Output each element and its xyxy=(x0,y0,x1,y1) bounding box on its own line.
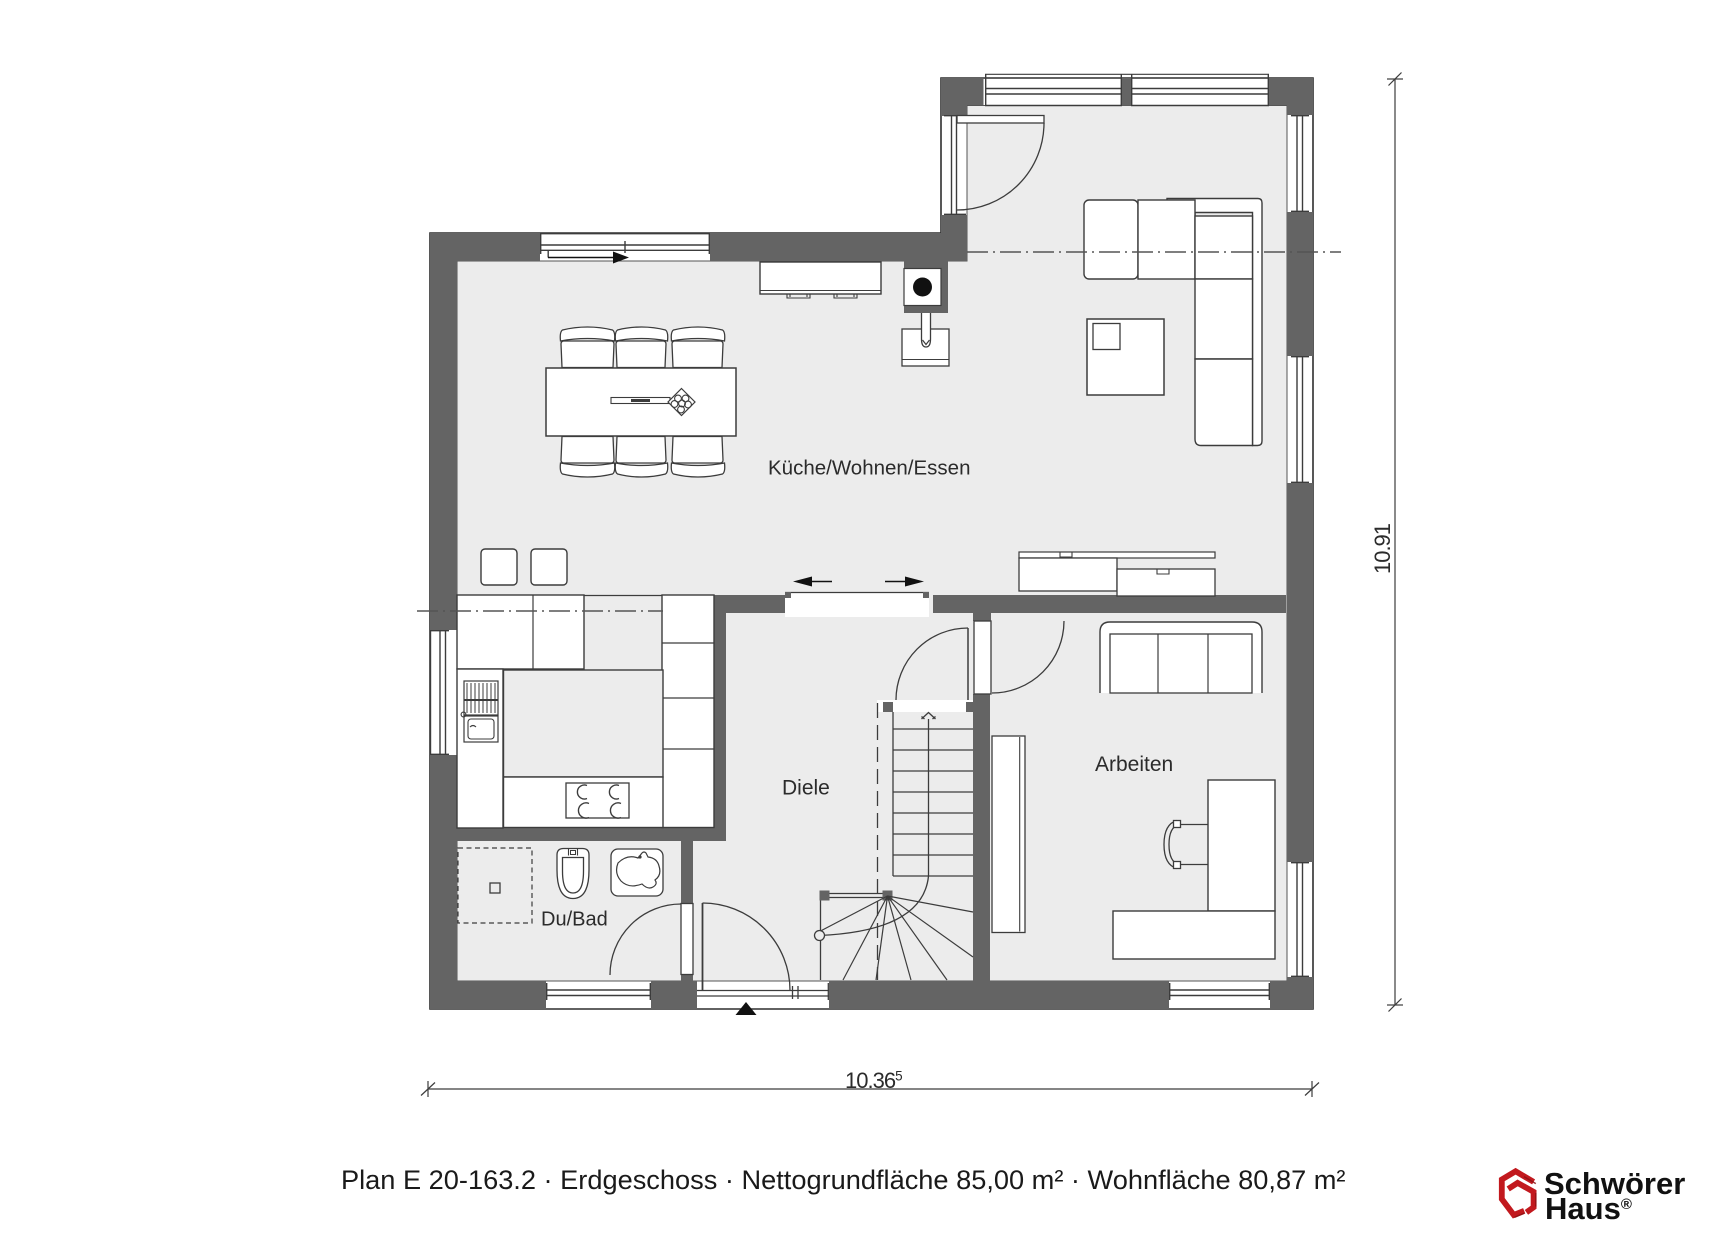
svg-text:Plan E 20-163.2 · Erdgeschoss: Plan E 20-163.2 · Erdgeschoss · Nettogru… xyxy=(341,1164,1345,1195)
svg-text:Küche/Wohnen/Essen: Küche/Wohnen/Essen xyxy=(768,457,970,480)
svg-text:10.91: 10.91 xyxy=(1370,523,1395,574)
svg-text:10.365: 10.365 xyxy=(845,1068,902,1093)
svg-text:Haus®: Haus® xyxy=(1545,1191,1632,1226)
svg-text:Du/Bad: Du/Bad xyxy=(541,909,608,931)
svg-text:Arbeiten: Arbeiten xyxy=(1095,753,1173,776)
svg-text:Diele: Diele xyxy=(782,777,830,800)
